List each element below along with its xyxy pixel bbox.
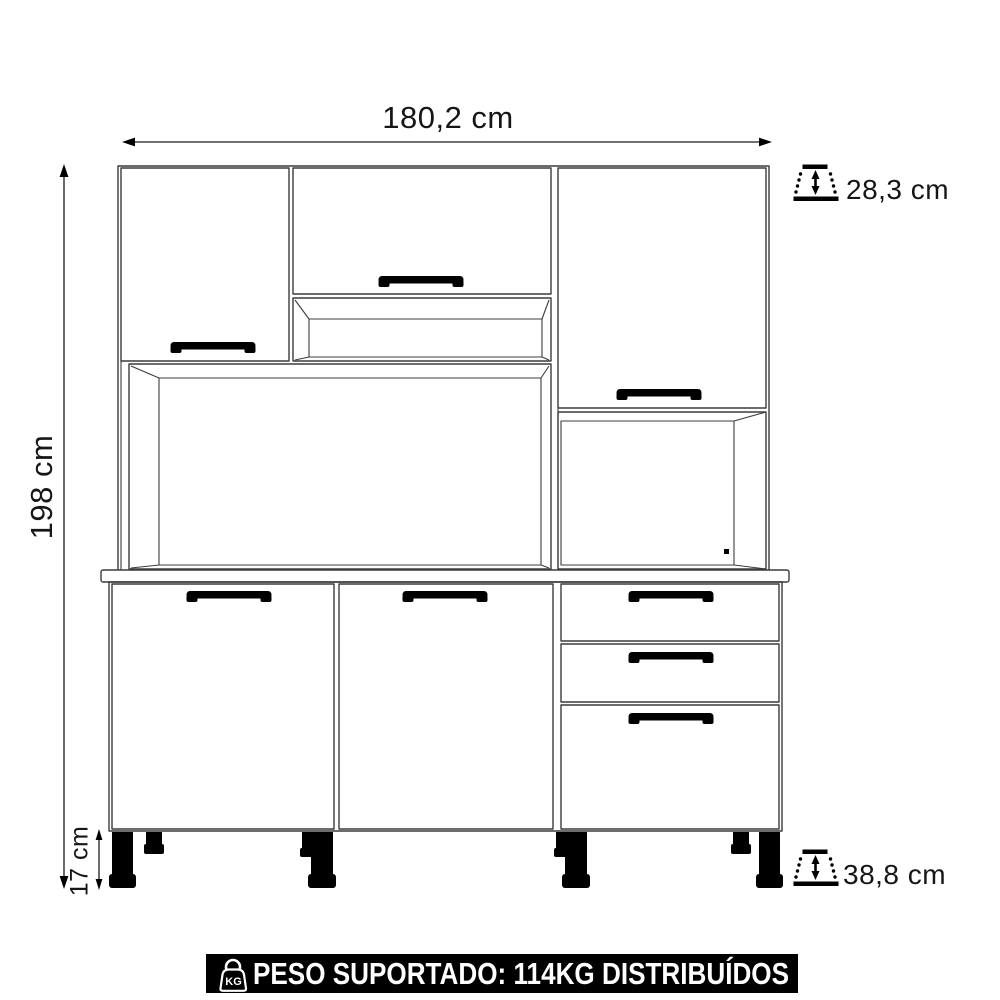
countertop bbox=[101, 570, 789, 582]
front-leg bbox=[308, 832, 336, 888]
supported-weight-banner: KG PESO SUPORTADO: 114KG DISTRIBUÍDOS bbox=[206, 954, 798, 993]
height-label: 198 cm bbox=[24, 435, 59, 540]
back-leg bbox=[731, 832, 751, 854]
height-dimension: 198 cm bbox=[24, 164, 68, 889]
diagram-svg: 180,2 cm 198 cm 17 cm bbox=[0, 0, 1000, 1000]
kg-icon-label: KG bbox=[225, 976, 242, 988]
front-leg bbox=[756, 832, 783, 888]
cabinet-dimension-diagram: 180,2 cm 198 cm 17 cm bbox=[0, 0, 1000, 1000]
base-left-door bbox=[112, 584, 334, 829]
upper-depth-badge: 28,3 cm bbox=[794, 165, 950, 206]
base-middle-door bbox=[339, 584, 553, 829]
feet-height-dimension: 17 cm bbox=[66, 826, 103, 897]
depth-icon bbox=[794, 165, 839, 202]
front-leg bbox=[109, 832, 136, 888]
front-leg bbox=[562, 832, 590, 888]
width-dimension: 180,2 cm bbox=[122, 100, 772, 146]
supported-weight-text: PESO SUPORTADO: 114KG DISTRIBUÍDOS bbox=[253, 956, 789, 991]
depth-icon bbox=[794, 850, 839, 887]
arrow-down-small-icon bbox=[96, 879, 103, 890]
cabinet-legs bbox=[109, 832, 783, 888]
upper-middle-door bbox=[293, 168, 551, 294]
feet-height-label: 17 cm bbox=[66, 826, 94, 897]
arrow-left-icon bbox=[122, 138, 135, 147]
width-label: 180,2 cm bbox=[382, 100, 514, 135]
base-depth-badge: 38,8 cm bbox=[794, 850, 947, 891]
central-open-niche bbox=[121, 361, 551, 570]
upper-depth-label: 28,3 cm bbox=[846, 174, 949, 205]
upper-hutch bbox=[118, 166, 769, 571]
upper-left-door bbox=[121, 168, 289, 361]
base-depth-label: 38,8 cm bbox=[843, 859, 946, 890]
middle-shelf-niche bbox=[293, 298, 551, 361]
right-open-niche bbox=[558, 408, 766, 570]
arrow-up-small-icon bbox=[96, 829, 103, 840]
drawer-3 bbox=[561, 705, 779, 829]
upper-right-door bbox=[558, 168, 766, 408]
base-cabinet bbox=[109, 582, 782, 831]
arrow-right-icon bbox=[759, 138, 772, 147]
niche-knob bbox=[724, 549, 729, 554]
back-leg bbox=[144, 832, 164, 854]
arrow-up-icon bbox=[60, 164, 69, 177]
